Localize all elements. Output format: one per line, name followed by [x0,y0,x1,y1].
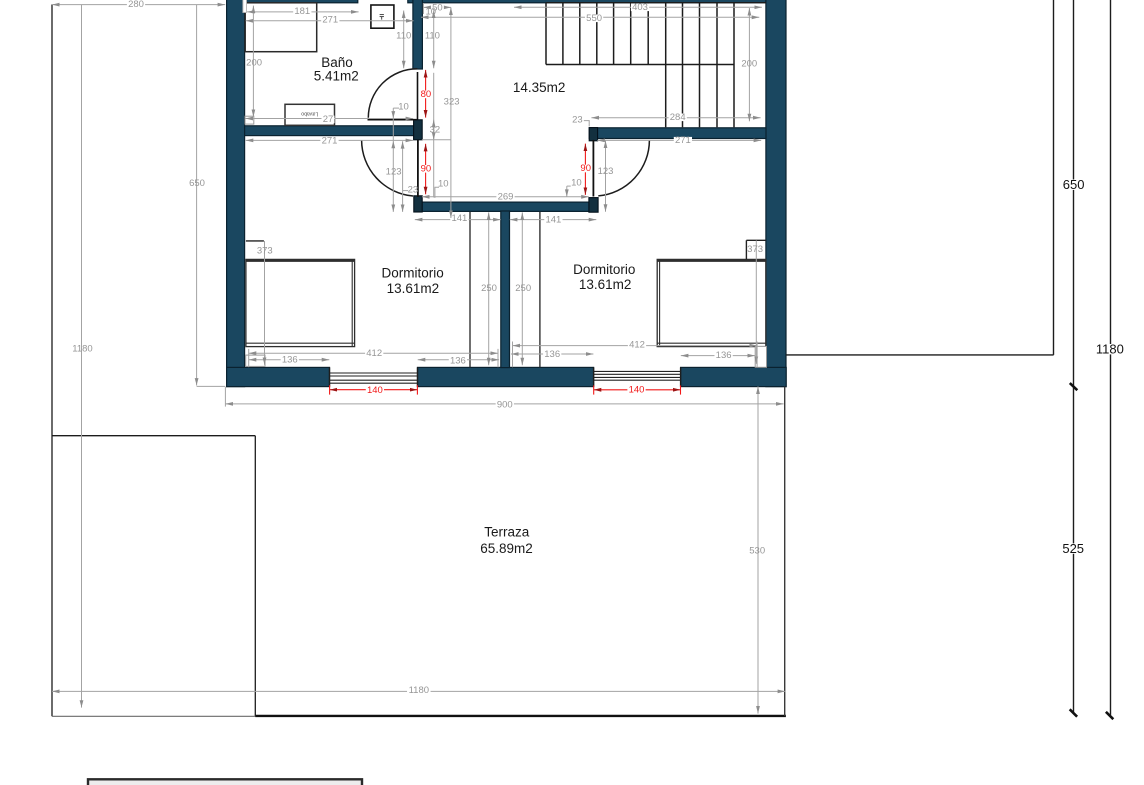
svg-text:1180: 1180 [1096,342,1124,357]
svg-text:Lavabo: Lavabo [301,111,318,117]
svg-text:23: 23 [572,115,583,126]
svg-text:140: 140 [367,385,383,396]
svg-text:200: 200 [246,58,262,69]
svg-text:141: 141 [451,213,467,224]
svg-text:140: 140 [629,385,645,396]
svg-text:200: 200 [741,58,757,69]
svg-text:Dormitorio: Dormitorio [573,262,635,277]
svg-text:250: 250 [481,283,497,294]
svg-text:136: 136 [450,356,466,367]
svg-text:650: 650 [189,178,205,189]
svg-text:5.41m2: 5.41m2 [314,69,359,84]
svg-text:271: 271 [322,136,338,147]
svg-text:90: 90 [580,163,591,174]
svg-text:650: 650 [1063,177,1085,192]
svg-text:80: 80 [421,89,432,100]
svg-text:10: 10 [426,6,437,17]
svg-text:525: 525 [1062,541,1084,556]
svg-text:13.61m2: 13.61m2 [579,277,632,292]
svg-text:10: 10 [438,179,449,190]
svg-text:373: 373 [747,244,763,255]
svg-text:14.35m2: 14.35m2 [513,80,566,95]
svg-text:123: 123 [598,166,614,177]
svg-text:141: 141 [545,215,561,226]
svg-text:550: 550 [586,13,602,24]
svg-text:530: 530 [749,546,765,557]
svg-text:13.61m2: 13.61m2 [387,281,440,296]
svg-text:Dormitorio: Dormitorio [381,266,443,281]
svg-text:27: 27 [323,114,334,125]
svg-text:280: 280 [128,0,144,10]
svg-text:373: 373 [257,245,273,256]
svg-text:10: 10 [571,177,582,188]
svg-text:136: 136 [544,349,560,360]
svg-text:10: 10 [398,102,409,113]
svg-text:403: 403 [632,2,648,13]
svg-text:284: 284 [670,112,686,123]
svg-text:90: 90 [421,163,432,174]
svg-text:271: 271 [675,135,691,146]
svg-text:136: 136 [282,355,298,366]
svg-text:23: 23 [408,184,419,195]
svg-text:323: 323 [444,97,460,108]
svg-text:412: 412 [366,348,382,359]
svg-text:65.89m2: 65.89m2 [480,541,533,556]
svg-text:412: 412 [629,340,645,351]
svg-text:271: 271 [322,15,338,26]
svg-text:181: 181 [294,6,310,17]
svg-text:136: 136 [716,350,732,361]
svg-text:110: 110 [425,31,440,42]
svg-text:Terraza: Terraza [484,525,530,540]
svg-text:110: 110 [396,31,411,42]
svg-text:250: 250 [515,283,531,294]
svg-text:32: 32 [430,125,441,136]
svg-text:1180: 1180 [72,344,92,355]
svg-text:1180: 1180 [409,685,429,696]
svg-text:269: 269 [498,191,514,202]
svg-text:900: 900 [497,400,513,411]
